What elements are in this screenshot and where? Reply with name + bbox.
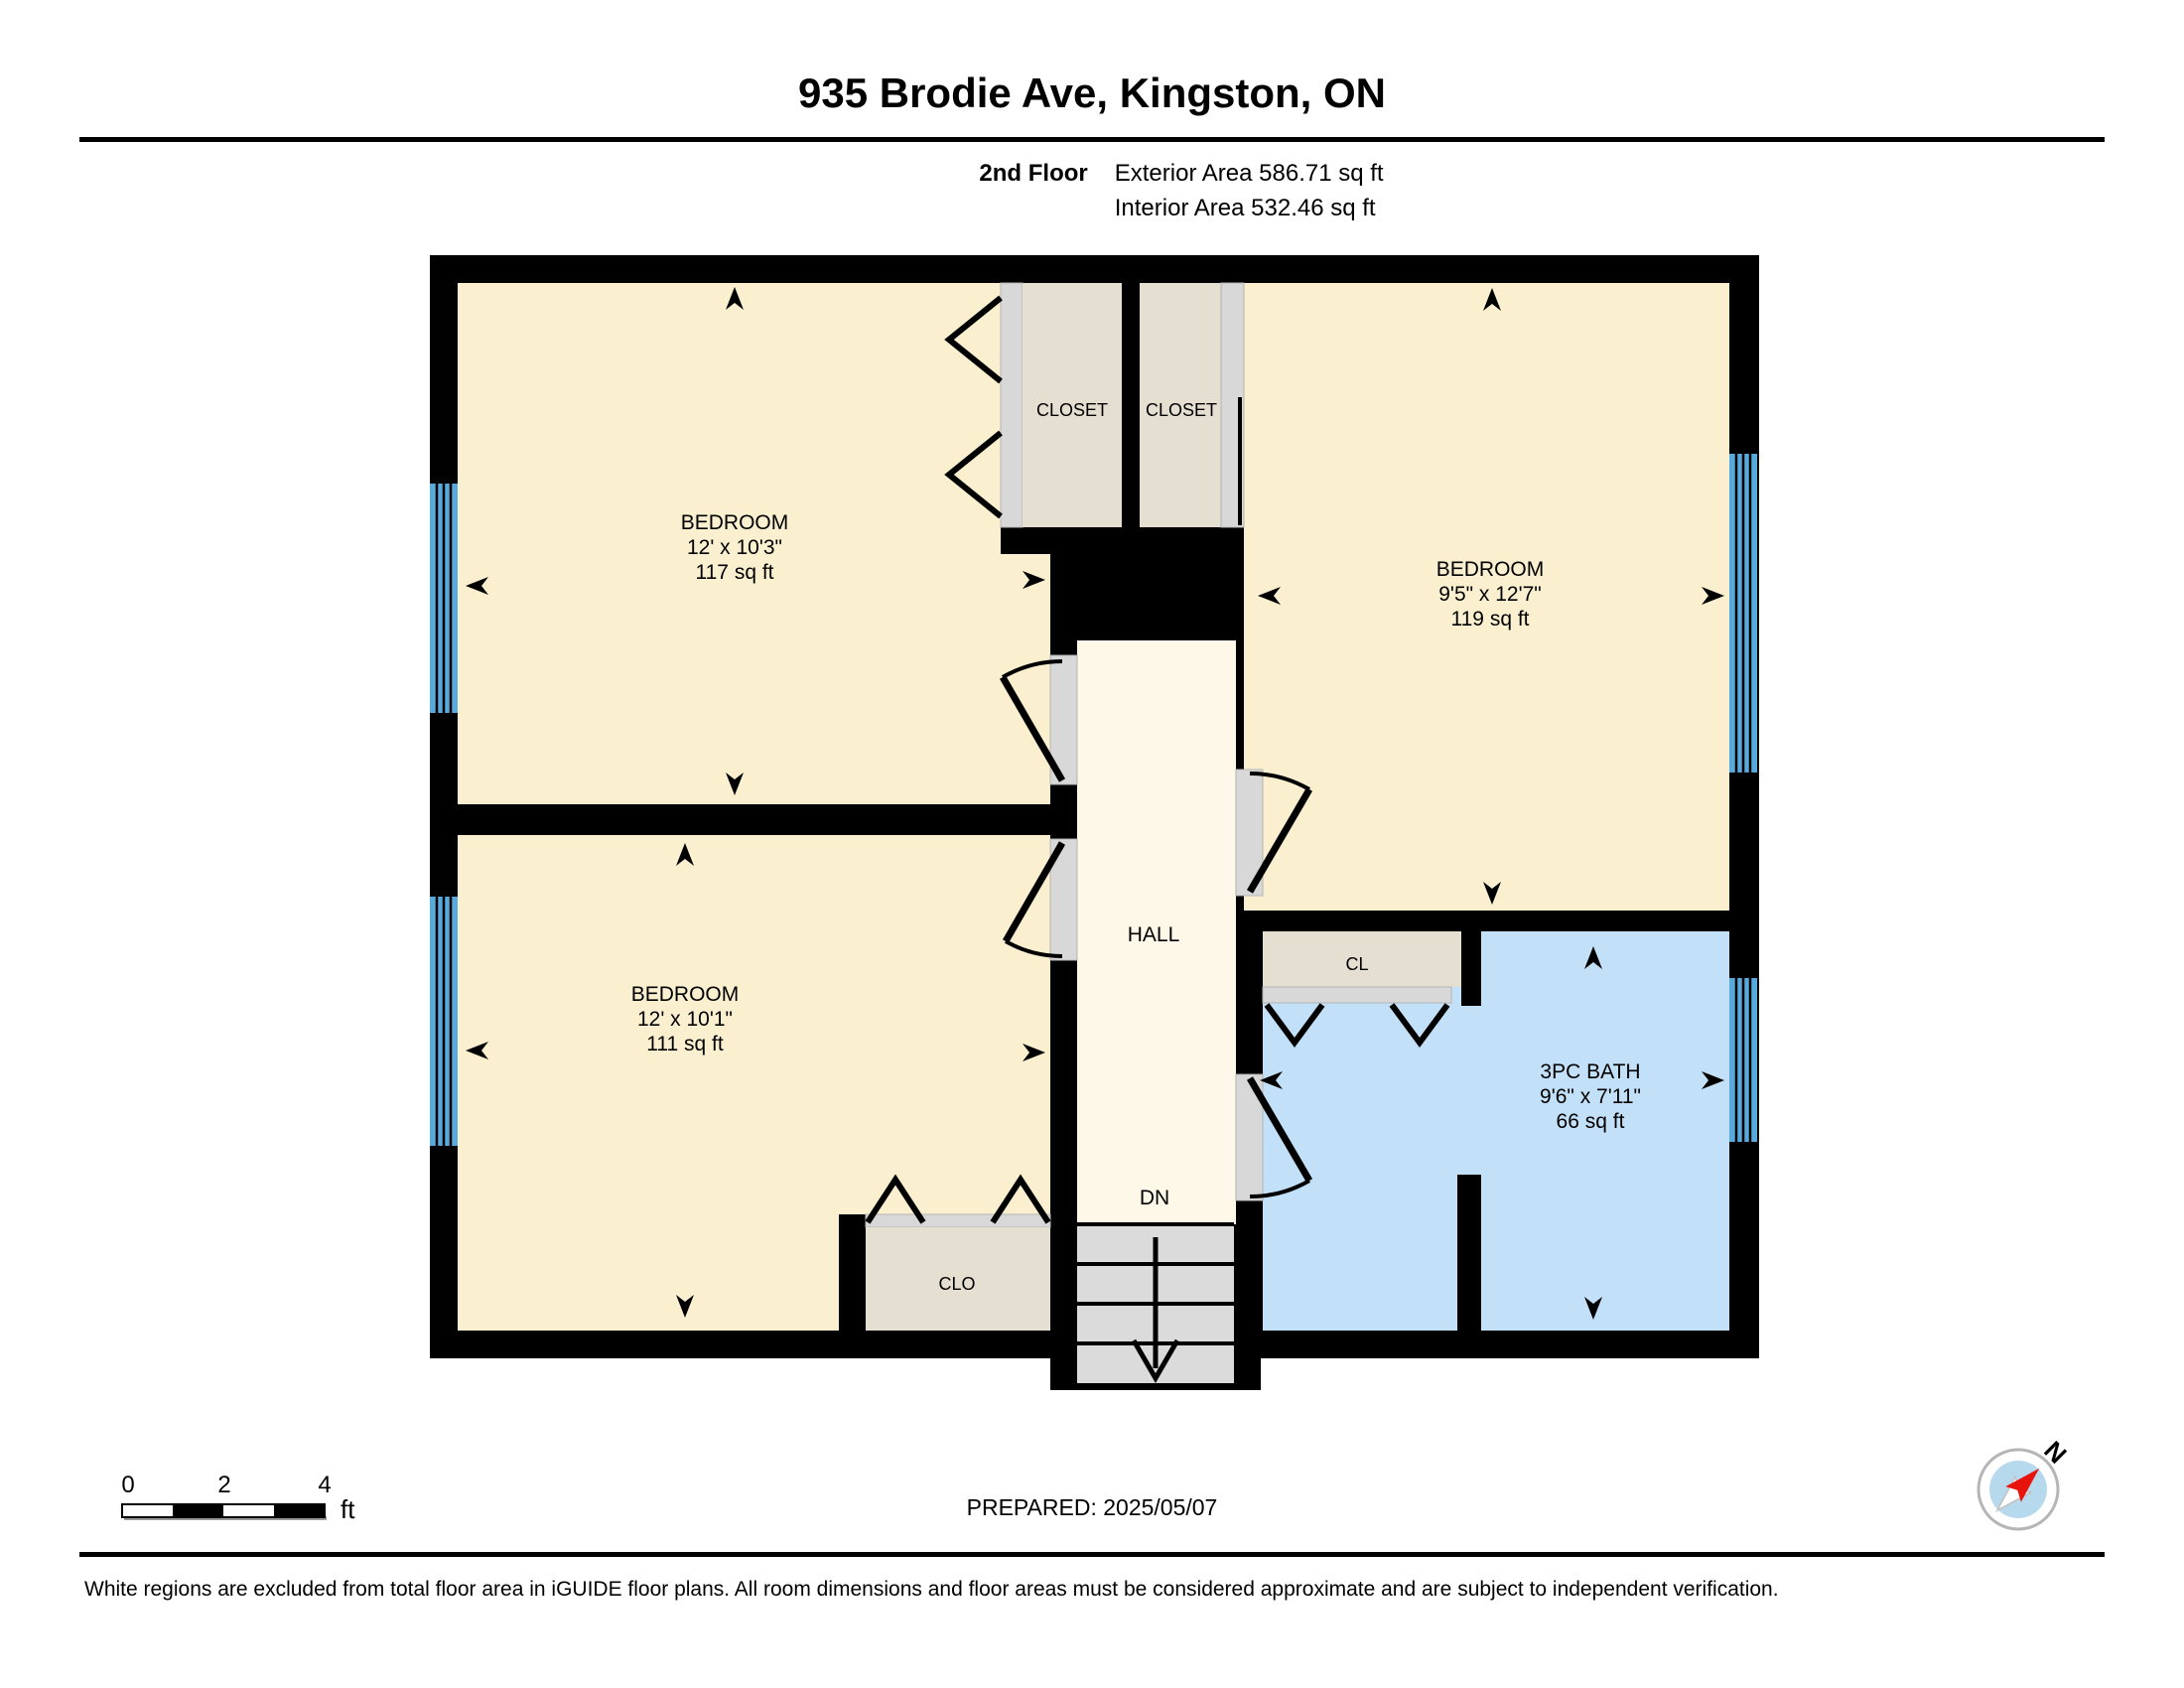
stairs-dn-label: DN — [1140, 1187, 1169, 1209]
window-bedroom-bottom-left — [430, 897, 458, 1146]
bath-partition-wall — [1457, 1175, 1481, 1331]
floor-plan-drawing: BEDROOM 12' x 10'3" 117 sq ft BEDROOM 12… — [0, 0, 2184, 1688]
bedroom-right-area: 119 sq ft — [1451, 608, 1530, 631]
bedroom-bottom-left-name: BEDROOM — [631, 983, 740, 1006]
closet-bedroom-door-track — [866, 1214, 1050, 1227]
bedroom-top-left-area: 117 sq ft — [696, 561, 774, 584]
hall-label: HALL — [1128, 923, 1180, 946]
closet-bedroom-wall — [839, 1214, 866, 1331]
bedroom-right-dims: 9'5" x 12'7" — [1438, 583, 1542, 606]
window-bedroom-top-left — [430, 484, 458, 713]
bath-dims: 9'6" x 7'11" — [1540, 1085, 1641, 1108]
footer-divider — [79, 1552, 2105, 1557]
bedroom-bottom-left-dims: 12' x 10'1" — [637, 1008, 733, 1031]
closet-left-label: CLOSET — [1036, 400, 1108, 420]
bath-name: 3PC BATH — [1540, 1060, 1640, 1083]
closet-hall-wall — [1461, 931, 1481, 1006]
bedroom-right-name: BEDROOM — [1436, 558, 1545, 581]
closet-hall-label: CL — [1345, 954, 1368, 974]
floor-plan-page: 935 Brodie Ave, Kingston, ON 2nd Floor E… — [0, 0, 2184, 1688]
bedroom-bottom-left-area: 111 sq ft — [646, 1033, 724, 1055]
bath-area: 66 sq ft — [1557, 1110, 1625, 1133]
closet-left-door-track — [1001, 283, 1023, 527]
bedroom-top-left-dims: 12' x 10'3" — [687, 536, 782, 559]
prepared-date: PREPARED: 2025/05/07 — [0, 1494, 2184, 1521]
bedroom-top-left-name: BEDROOM — [681, 511, 789, 534]
closet-hall-door-track — [1263, 987, 1451, 1003]
window-bedroom-right — [1729, 454, 1757, 773]
window-bath — [1729, 978, 1757, 1142]
disclaimer-text: White regions are excluded from total fl… — [84, 1578, 2119, 1602]
closet-right-label: CLOSET — [1146, 400, 1217, 420]
closet-bedroom-label: CLO — [938, 1274, 975, 1294]
